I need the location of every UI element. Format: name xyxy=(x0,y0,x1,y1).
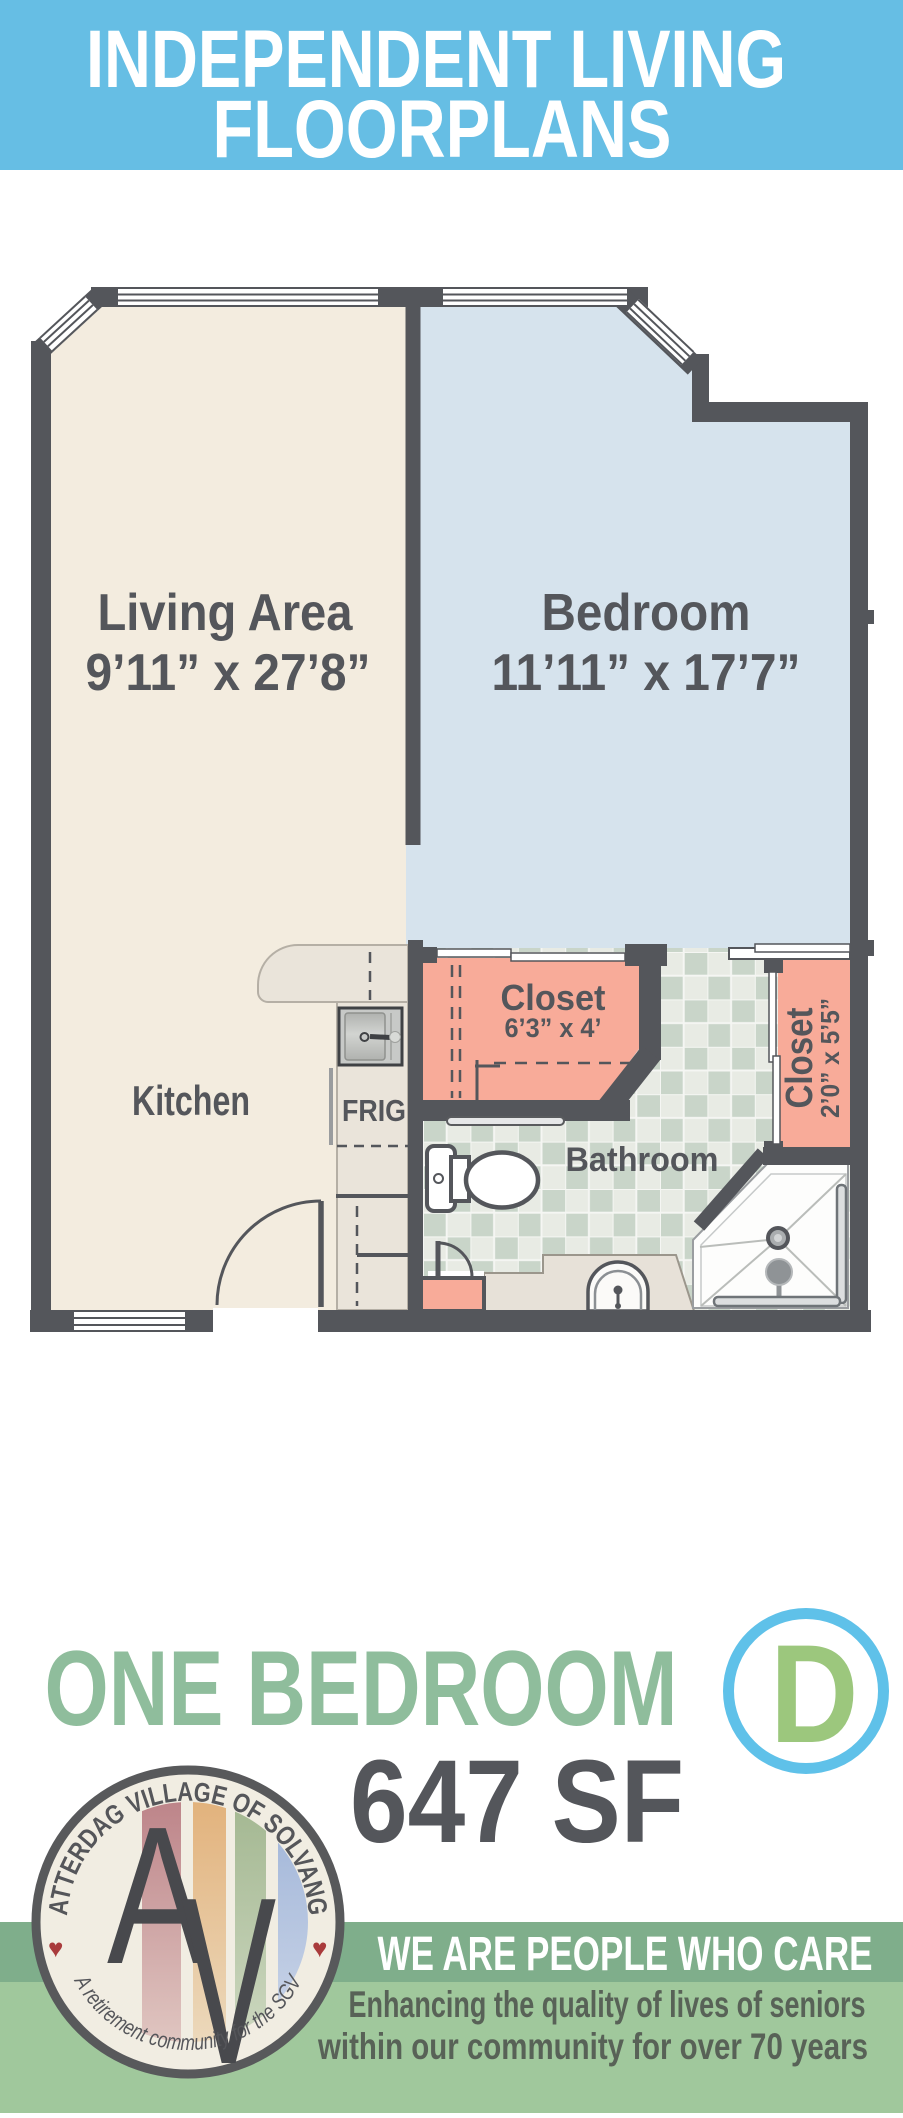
svg-text:WE ARE PEOPLE WHO CARE: WE ARE PEOPLE WHO CARE xyxy=(378,1928,873,1981)
svg-text:Closet: Closet xyxy=(501,977,606,1018)
svg-text:♥: ♥ xyxy=(48,1933,63,1963)
svg-text:2’0” x 5’5”: 2’0” x 5’5” xyxy=(815,998,845,1118)
svg-text:9’11” x 27’8”: 9’11” x 27’8” xyxy=(86,644,371,702)
svg-text:Kitchen: Kitchen xyxy=(132,1077,250,1124)
svg-text:Bedroom: Bedroom xyxy=(542,584,751,642)
svg-text:Living Area: Living Area xyxy=(98,584,354,642)
svg-text:within our community for over: within our community for over 70 years xyxy=(317,2026,868,2067)
svg-text:11’11” x 17’7”: 11’11” x 17’7” xyxy=(492,644,801,702)
svg-text:647 SF: 647 SF xyxy=(350,1736,684,1868)
svg-text:6’3” x 4’: 6’3” x 4’ xyxy=(505,1013,602,1043)
svg-text:D: D xyxy=(770,1615,858,1771)
svg-text:♥: ♥ xyxy=(312,1933,327,1963)
svg-text:Bathroom: Bathroom xyxy=(566,1141,719,1179)
svg-text:Enhancing the quality of lives: Enhancing the quality of lives of senior… xyxy=(349,1984,866,2025)
svg-text:FRIG: FRIG xyxy=(342,1093,406,1128)
svg-text:ONE BEDROOM: ONE BEDROOM xyxy=(45,1628,678,1748)
svg-text:FLOORPLANS: FLOORPLANS xyxy=(213,84,672,175)
svg-text:V: V xyxy=(181,1847,276,2113)
